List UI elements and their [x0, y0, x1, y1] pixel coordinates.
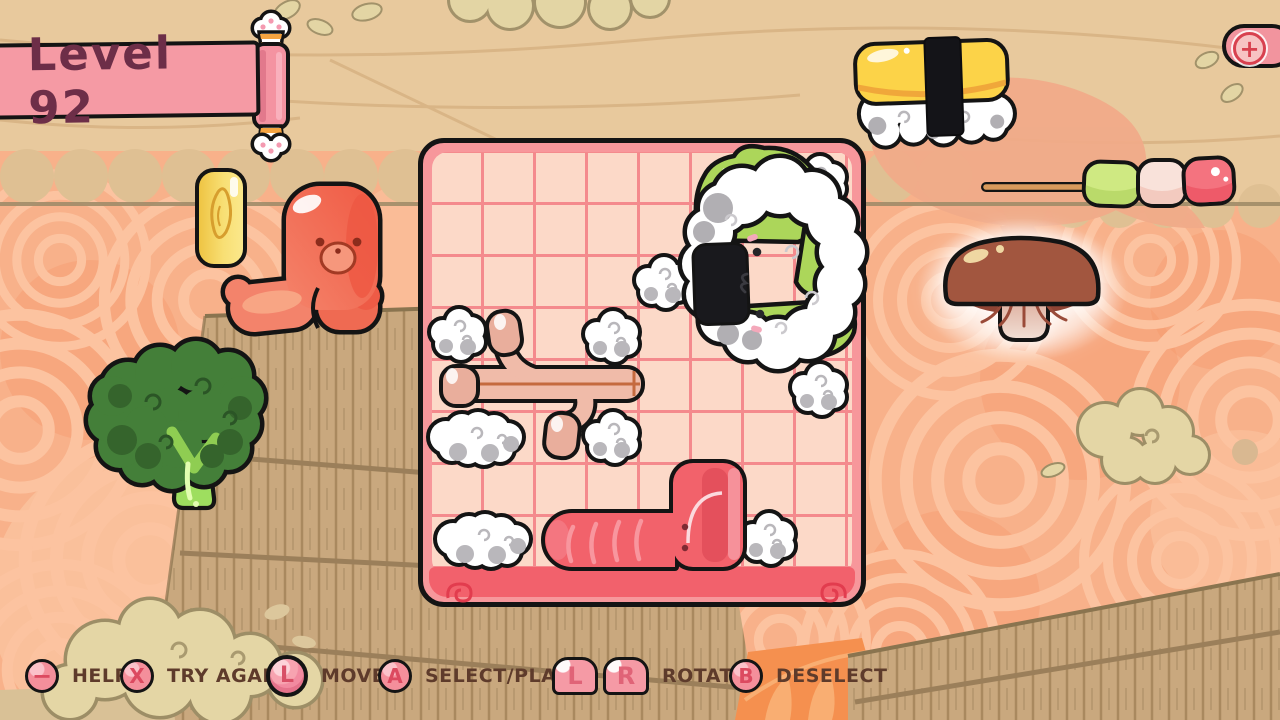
control-hint-bar: − HELP X TRY AGAIN L MOVE A SELECT/PLACE… [0, 652, 1280, 700]
level-banner: Level 92 [0, 40, 260, 119]
board-grid[interactable] [432, 152, 852, 576]
control-help: − HELP [25, 652, 129, 700]
x-button-icon[interactable]: X [120, 659, 154, 693]
plus-icon: + [1233, 32, 1266, 65]
game-screen: Level 92 + − HELP X TRY AGAIN L MOVE A S… [0, 0, 1280, 720]
r-shoulder-icon[interactable]: R [603, 657, 649, 695]
control-rotate: L R ROTATE [552, 652, 746, 700]
minus-button-icon[interactable]: − [25, 659, 59, 693]
control-deselect: B DESELECT [729, 652, 887, 700]
a-button-icon[interactable]: A [378, 659, 412, 693]
board-front-face [429, 567, 855, 597]
level-label: Level 92 [0, 25, 257, 134]
left-stick-icon[interactable]: L [266, 655, 308, 697]
control-move: L MOVE [266, 652, 385, 700]
move-label: MOVE [321, 665, 385, 687]
add-button[interactable]: + [1222, 24, 1280, 68]
control-try-again: X TRY AGAIN [120, 652, 286, 700]
deselect-label: DESELECT [776, 665, 887, 687]
b-button-icon[interactable]: B [729, 659, 763, 693]
puzzle-board [418, 138, 866, 607]
l-shoulder-icon[interactable]: L [552, 657, 598, 695]
